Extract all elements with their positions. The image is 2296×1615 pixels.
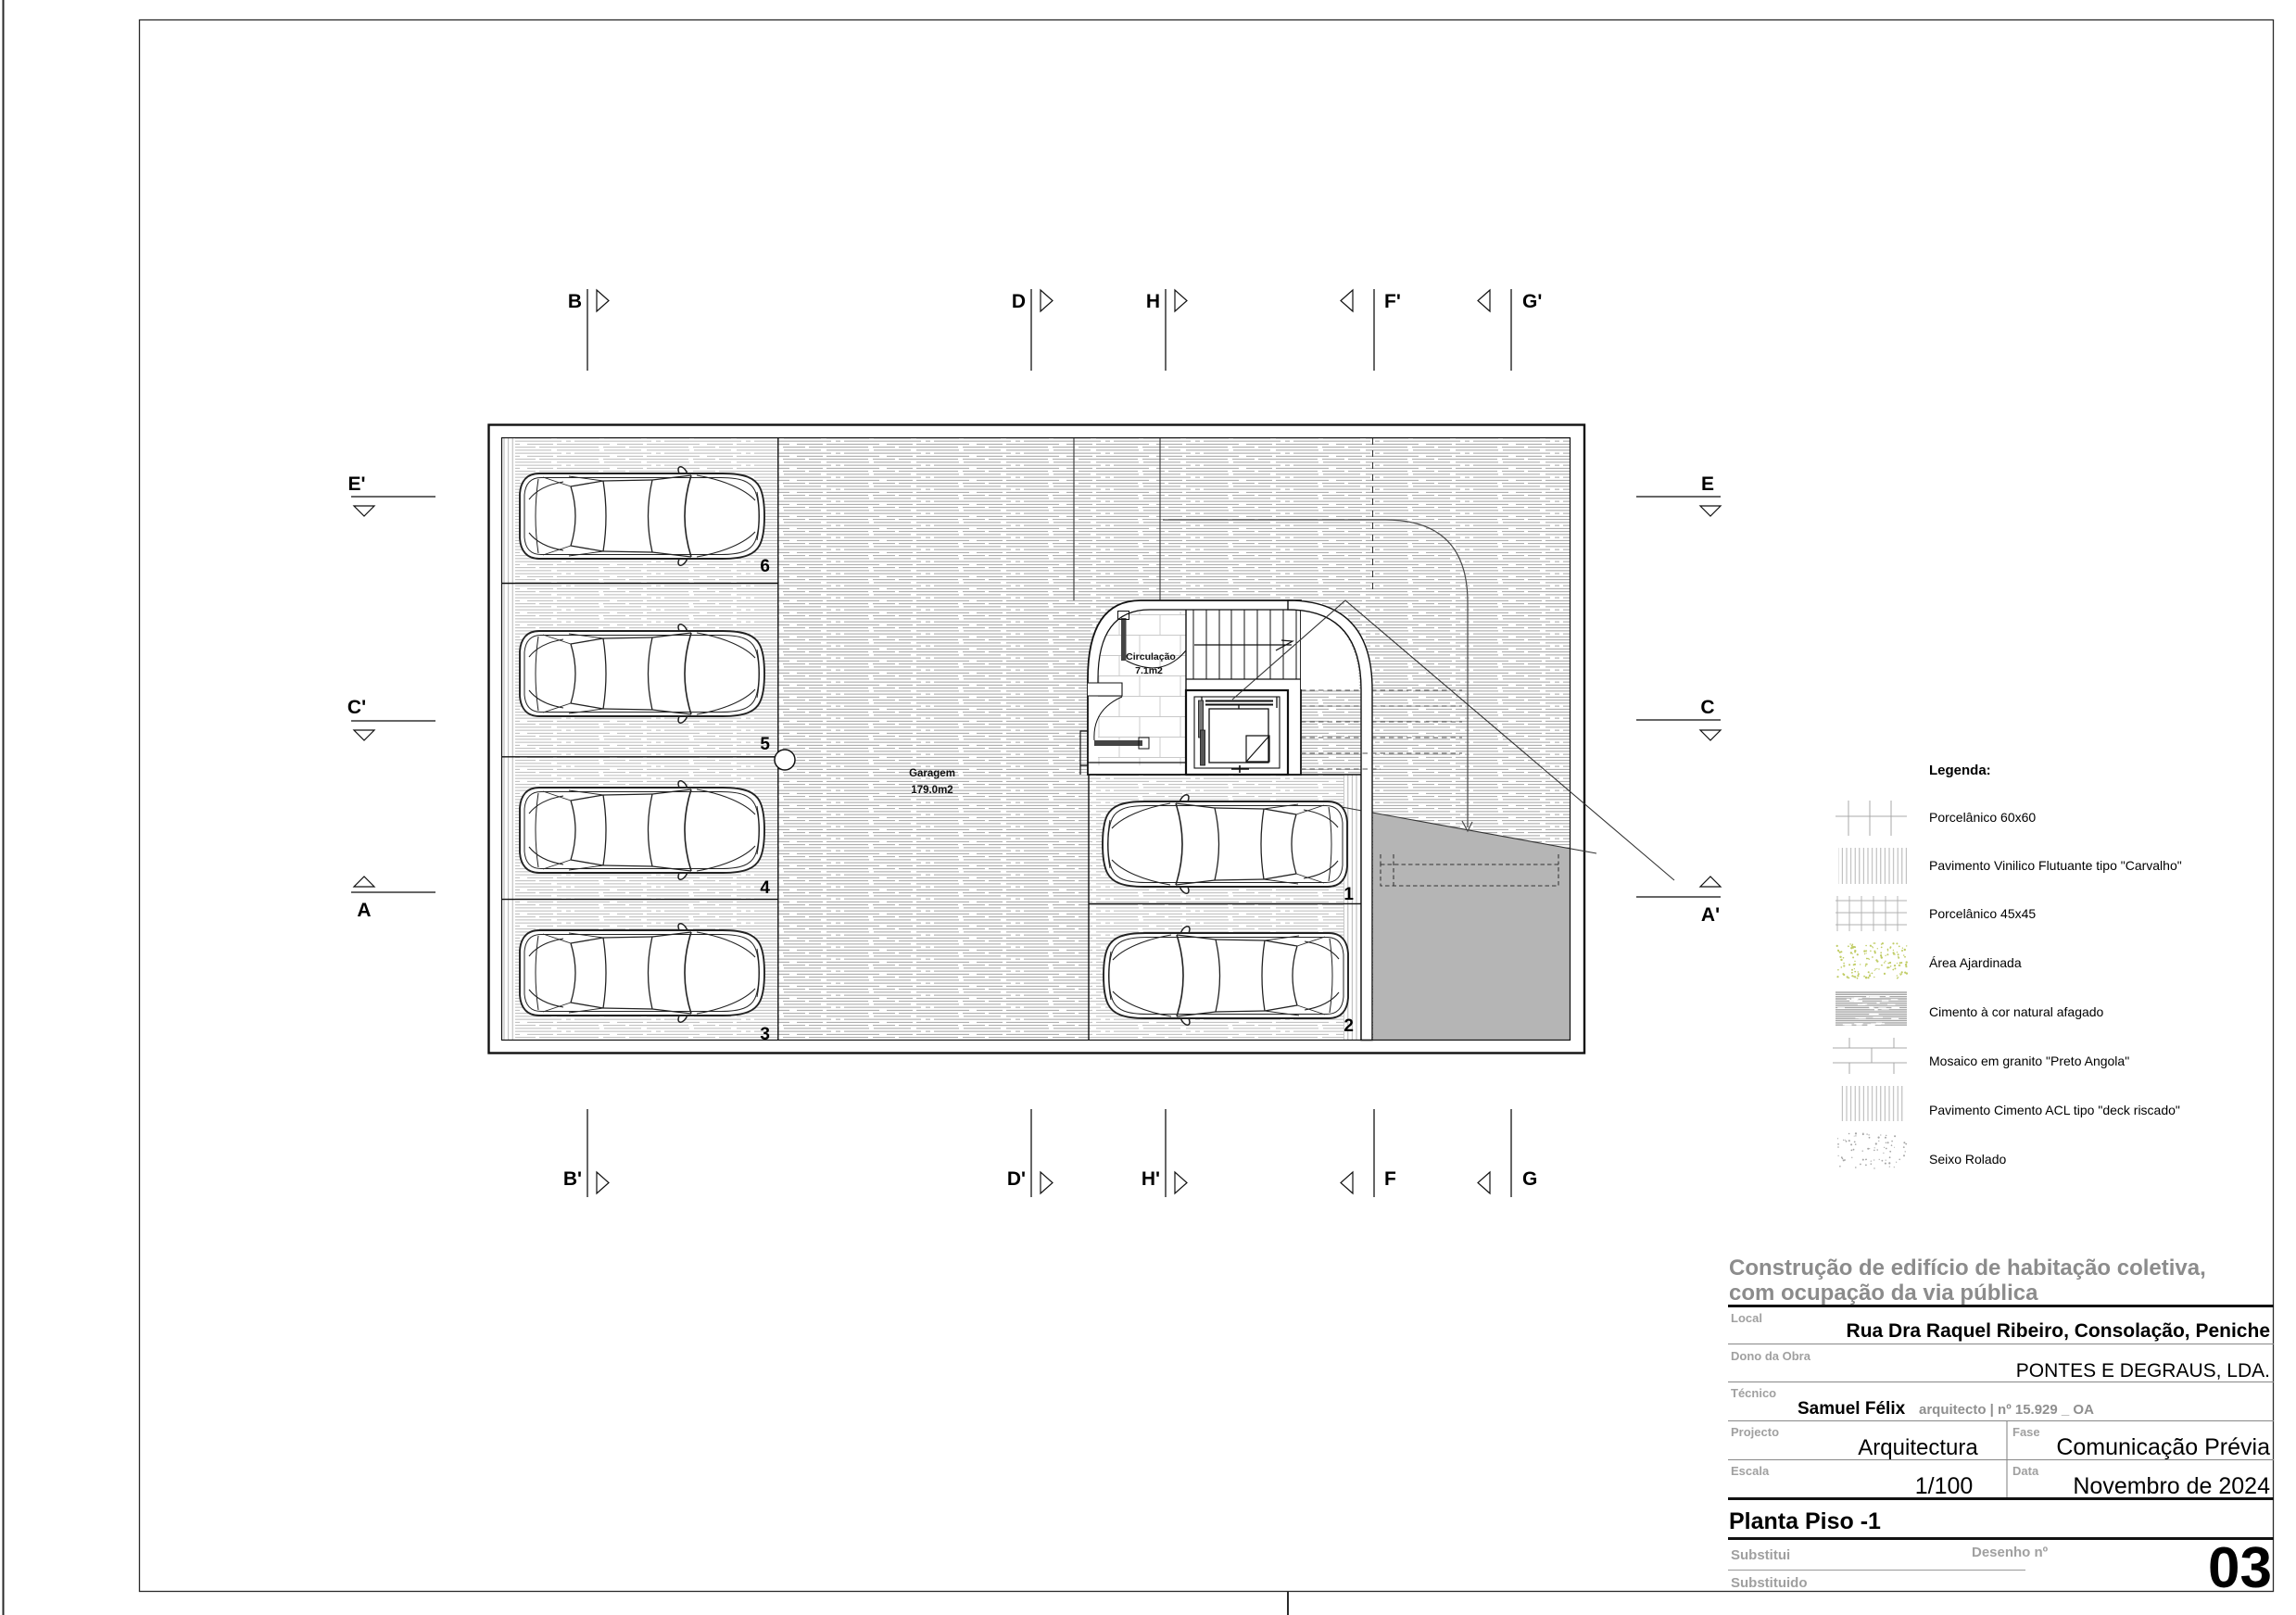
svg-text:1/100: 1/100 <box>1915 1473 1974 1499</box>
svg-text:Novembro de 2024: Novembro de 2024 <box>2073 1473 2270 1499</box>
svg-text:Pavimento Cimento ACL tipo "de: Pavimento Cimento ACL tipo "deck riscado… <box>1929 1103 2180 1117</box>
svg-text:Porcelânico 60x60: Porcelânico 60x60 <box>1929 810 2036 825</box>
svg-text:com ocupação da via pública: com ocupação da via pública <box>1729 1281 2038 1306</box>
svg-text:5: 5 <box>760 735 770 754</box>
svg-text:179.0m2: 179.0m2 <box>911 785 952 796</box>
svg-text:Dono da Obra: Dono da Obra <box>1731 1349 1811 1363</box>
svg-text:Samuel Félix: Samuel Félix <box>1798 1399 1906 1419</box>
svg-text:Substituido: Substituido <box>1731 1575 1808 1591</box>
svg-text:3: 3 <box>760 1025 770 1044</box>
svg-text:C: C <box>1700 697 1714 718</box>
svg-text:Pavimento Vinilico Flutuante t: Pavimento Vinilico Flutuante tipo "Carva… <box>1929 858 2182 873</box>
svg-text:H: H <box>1146 291 1160 312</box>
svg-text:Rua Dra Raquel Ribeiro, Consol: Rua Dra Raquel Ribeiro, Consolação, Peni… <box>1847 1320 2270 1342</box>
svg-text:Arquitectura: Arquitectura <box>1858 1435 1978 1460</box>
svg-text:H': H' <box>1142 1168 1160 1190</box>
svg-text:Porcelânico 45x45: Porcelânico 45x45 <box>1929 906 2036 921</box>
svg-text:Seixo Rolado: Seixo Rolado <box>1929 1152 2006 1167</box>
svg-text:Substitui: Substitui <box>1731 1547 1790 1563</box>
svg-text:Desenho nº: Desenho nº <box>1972 1545 2049 1560</box>
svg-text:Fase: Fase <box>2012 1425 2040 1439</box>
svg-text:Técnico: Técnico <box>1731 1386 1776 1400</box>
svg-text:03: 03 <box>2208 1536 2272 1600</box>
svg-text:Área Ajardinada: Área Ajardinada <box>1929 955 2022 970</box>
svg-text:PONTES E DEGRAUS, LDA.: PONTES E DEGRAUS, LDA. <box>2016 1360 2270 1382</box>
svg-text:Projecto: Projecto <box>1731 1425 1779 1439</box>
svg-text:E: E <box>1701 473 1714 495</box>
svg-text:7.1m2: 7.1m2 <box>1135 665 1163 676</box>
svg-text:F': F' <box>1384 291 1401 312</box>
svg-text:Local: Local <box>1731 1311 1762 1325</box>
svg-text:D': D' <box>1007 1168 1026 1190</box>
svg-text:Garagem: Garagem <box>909 768 955 779</box>
svg-text:Mosaico em granito "Preto Ango: Mosaico em granito "Preto Angola" <box>1929 1054 2129 1068</box>
svg-text:Escala: Escala <box>1731 1464 1770 1478</box>
svg-text:Legenda:: Legenda: <box>1929 763 1991 778</box>
svg-text:F: F <box>1384 1168 1396 1190</box>
svg-text:B': B' <box>563 1168 582 1190</box>
svg-text:D: D <box>1012 291 1026 312</box>
svg-text:A: A <box>357 900 371 921</box>
svg-text:G: G <box>1522 1168 1537 1190</box>
svg-text:E': E' <box>347 473 365 495</box>
svg-text:2: 2 <box>1344 1016 1354 1036</box>
svg-text:Circulação: Circulação <box>1126 651 1176 662</box>
svg-text:1: 1 <box>1344 885 1354 904</box>
svg-text:arquitecto | nº 15.929 _ OA: arquitecto | nº 15.929 _ OA <box>1919 1402 2094 1418</box>
svg-text:Data: Data <box>2012 1464 2039 1478</box>
svg-text:C': C' <box>347 697 366 718</box>
svg-text:Construção de edifício de habi: Construção de edifício de habitação cole… <box>1729 1255 2206 1281</box>
svg-text:4: 4 <box>760 878 770 898</box>
svg-text:A': A' <box>1701 904 1720 926</box>
svg-text:B: B <box>568 291 582 312</box>
svg-text:Cimento à cor natural afagado: Cimento à cor natural afagado <box>1929 1004 2104 1019</box>
svg-text:G': G' <box>1522 291 1542 312</box>
svg-text:Comunicação Prévia: Comunicação Prévia <box>2056 1434 2270 1460</box>
svg-text:6: 6 <box>760 557 770 576</box>
svg-text:Planta Piso -1: Planta Piso -1 <box>1729 1508 1881 1534</box>
